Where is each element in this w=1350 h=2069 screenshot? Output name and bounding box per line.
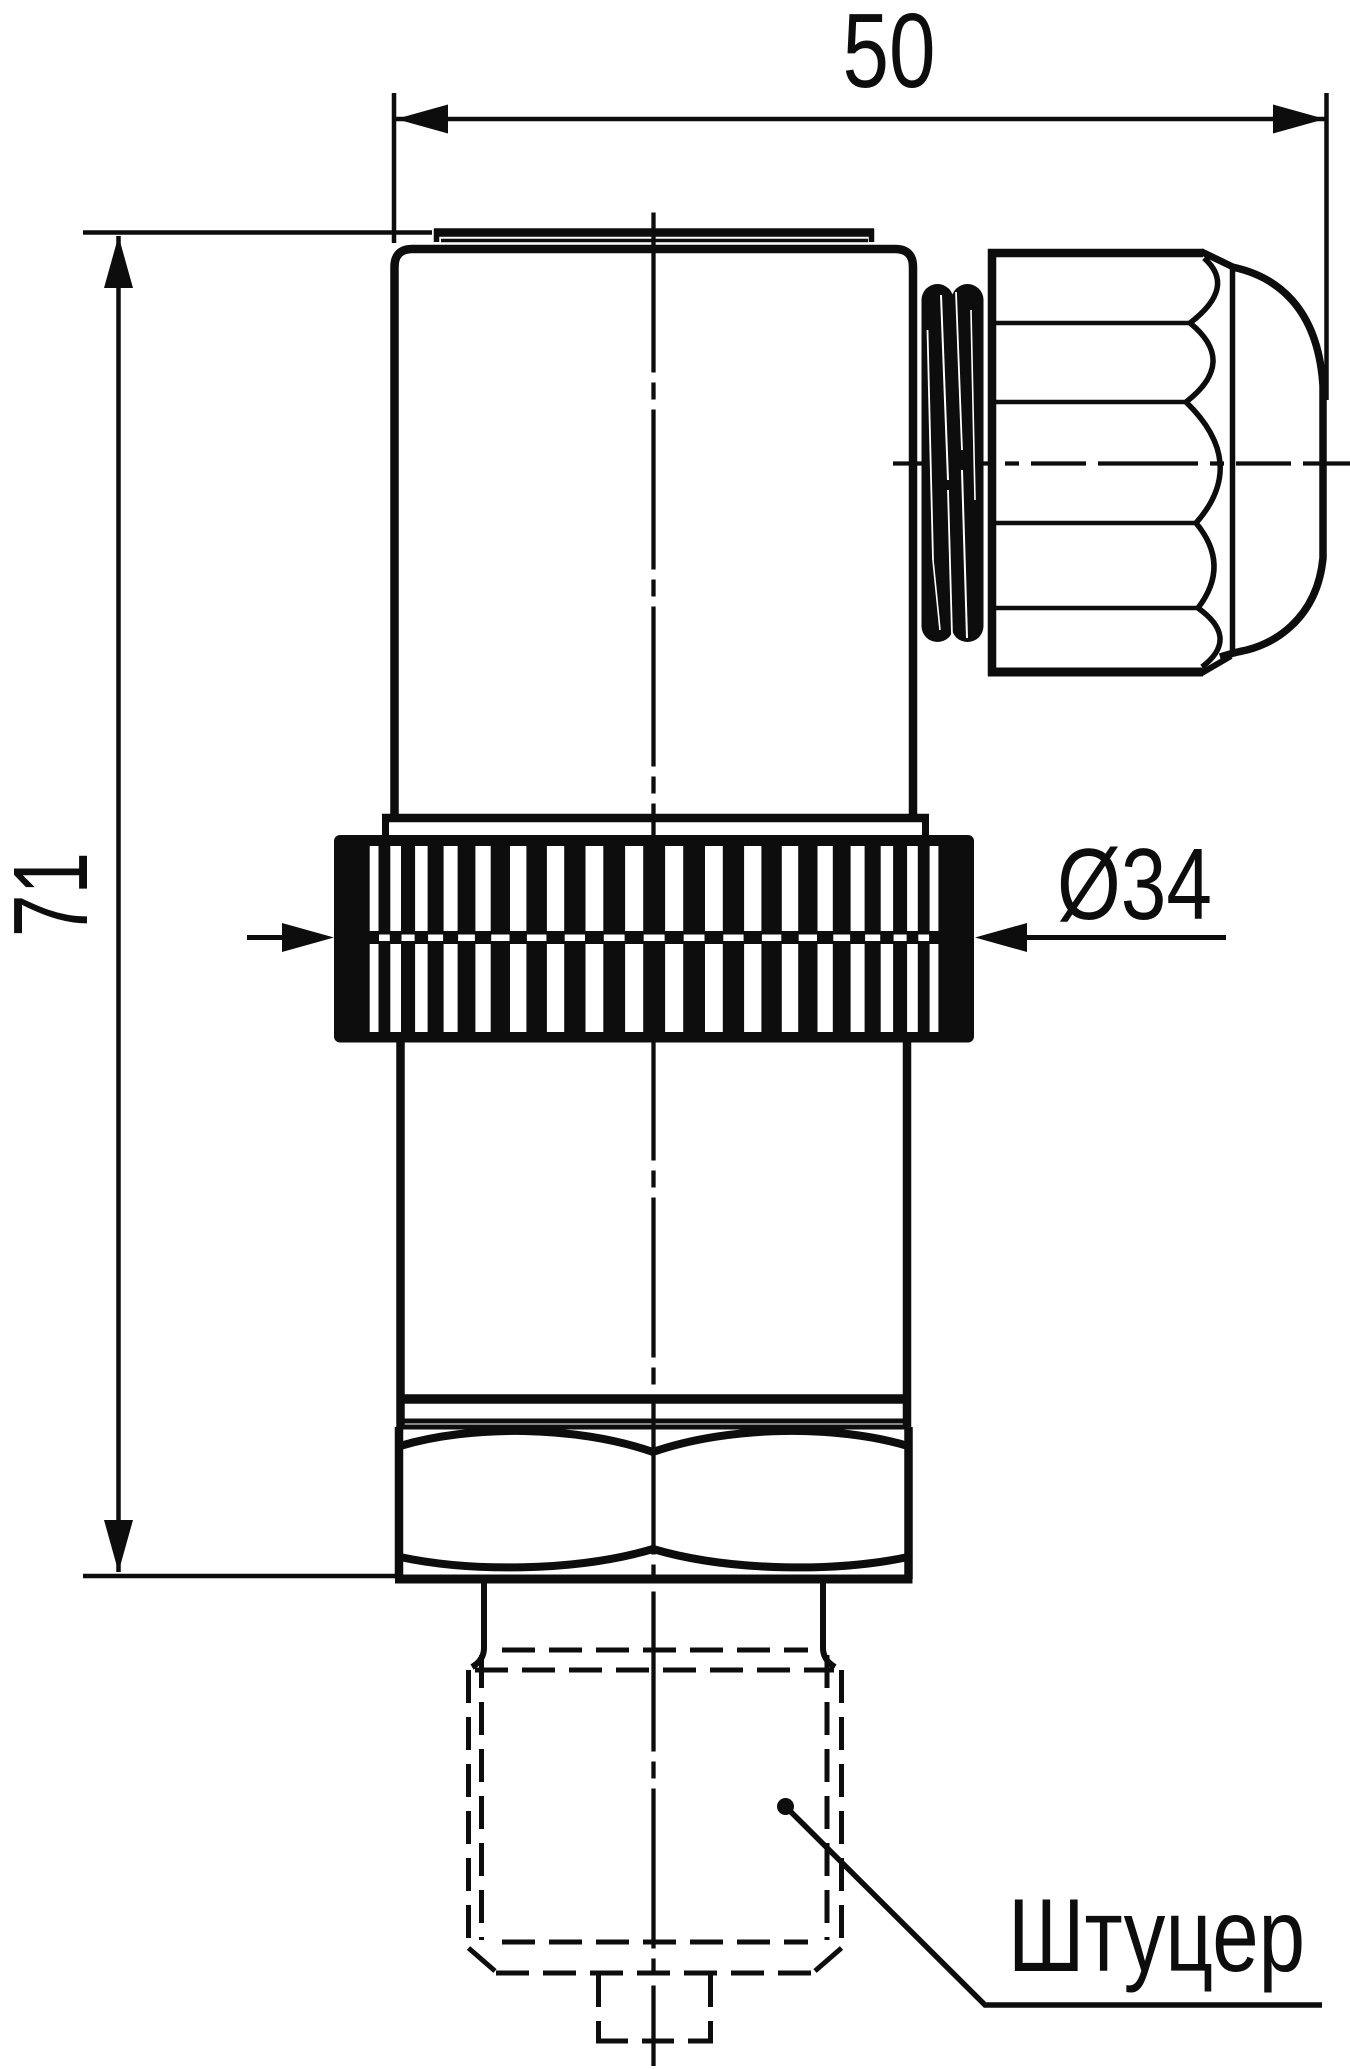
- svg-text:Ø34: Ø34: [1057, 829, 1212, 941]
- svg-text:71: 71: [0, 852, 110, 937]
- svg-text:Штуцер: Штуцер: [1008, 1878, 1305, 1994]
- svg-text:50: 50: [843, 0, 936, 110]
